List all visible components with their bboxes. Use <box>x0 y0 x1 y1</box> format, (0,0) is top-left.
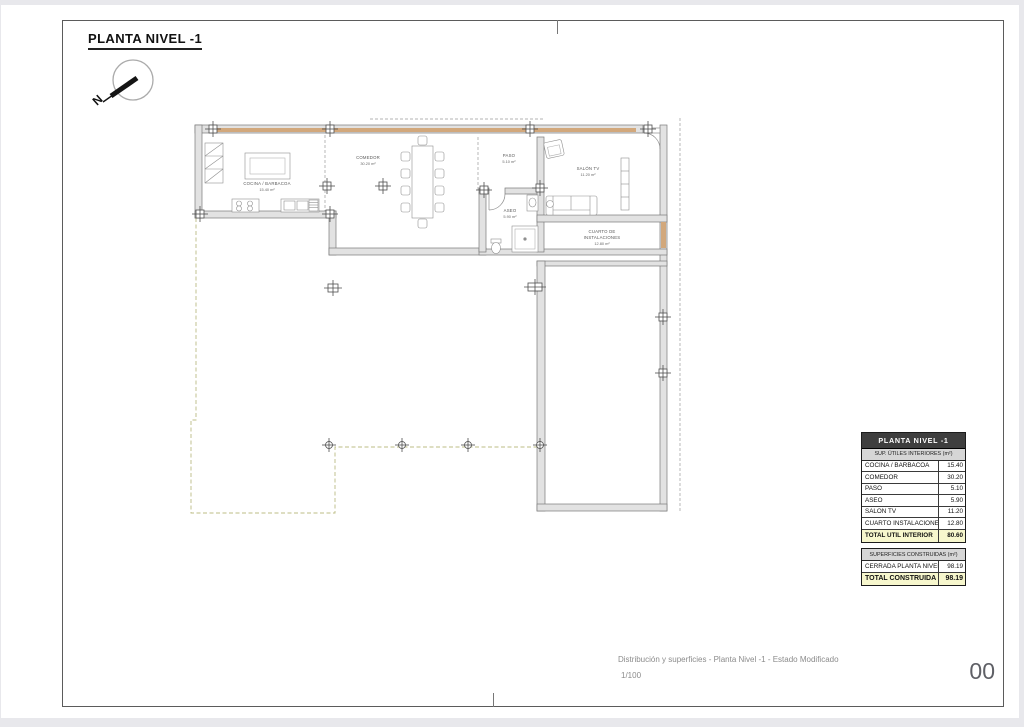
room-label-cuarto-2: INSTALACIONES <box>584 235 621 240</box>
room-area-aseo: 5.90 m² <box>503 214 517 219</box>
drawing-scale: 1/100 <box>621 671 641 680</box>
kitchen-island <box>245 153 290 179</box>
room-label-salon: SALÓN TV <box>577 166 600 171</box>
furniture <box>205 136 629 254</box>
interior-surfaces-table: PLANTA NIVEL -1 SUP. ÚTILES INTERIORES (… <box>861 432 966 543</box>
terrace-dashed-outline <box>191 218 537 513</box>
table-row: COMEDOR 30.20 <box>862 472 965 484</box>
tv-unit <box>621 158 629 210</box>
table-row: SALÓN TV 11.20 <box>862 507 965 519</box>
sofa <box>546 196 597 215</box>
armchair <box>544 139 565 158</box>
shower <box>512 226 538 252</box>
room-label-cocina: COCINA / BARBACOA <box>243 181 290 186</box>
table-row: PASO 5.10 <box>862 484 965 496</box>
table-row: CERRADA PLANTA NIVEL -1 98.19 <box>862 561 965 573</box>
room-area-salon: 11.20 m² <box>580 172 596 177</box>
table-total-row: TOTAL CONSTRUIDA 98.19 <box>862 573 965 585</box>
table-row: COCINA / BARBACOA 15.40 <box>862 461 965 473</box>
kitchen-shelving <box>205 143 223 183</box>
washbasin <box>527 195 538 211</box>
room-label-paso: PASO <box>503 153 516 158</box>
built-surfaces-table: SUPERFICIES CONSTRUIDAS (m²) CERRADA PLA… <box>861 548 966 586</box>
north-arrow: N <box>90 60 153 108</box>
table-subtitle: SUPERFICIES CONSTRUIDAS (m²) <box>862 549 965 561</box>
floor-plan-drawing: N <box>0 0 1024 727</box>
room-area-comedor: 30.20 m² <box>360 161 376 166</box>
sink-counter <box>281 199 319 212</box>
aseo-door <box>489 194 505 210</box>
sheet-number: 00 <box>938 658 995 685</box>
table-title: PLANTA NIVEL -1 <box>862 433 965 449</box>
toilet <box>491 239 501 254</box>
table-row: ASEO 5.90 <box>862 495 965 507</box>
table-subtitle: SUP. ÚTILES INTERIORES (m²) <box>862 449 965 461</box>
room-area-cuarto: 12.80 m² <box>594 241 610 246</box>
stove <box>232 199 259 212</box>
dining-table <box>401 136 444 228</box>
room-label-cuarto-1: CUARTO DE <box>589 229 616 234</box>
table-total-row: TOTAL ÚTIL INTERIOR 80.60 <box>862 530 965 542</box>
room-label-aseo: ASEO <box>504 208 517 213</box>
drawing-sheet: { "sheet": { "title": "PLANTA NIVEL -1",… <box>0 0 1024 727</box>
room-area-paso: 5.10 m² <box>502 159 516 164</box>
table-row: CUARTO INSTALACIONES 12.80 <box>862 518 965 530</box>
north-letter: N <box>90 92 106 108</box>
drawing-description: Distribución y superficies - Planta Nive… <box>618 655 839 664</box>
room-area-cocina: 15.40 m² <box>259 187 275 192</box>
room-label-comedor: COMEDOR <box>356 155 380 160</box>
